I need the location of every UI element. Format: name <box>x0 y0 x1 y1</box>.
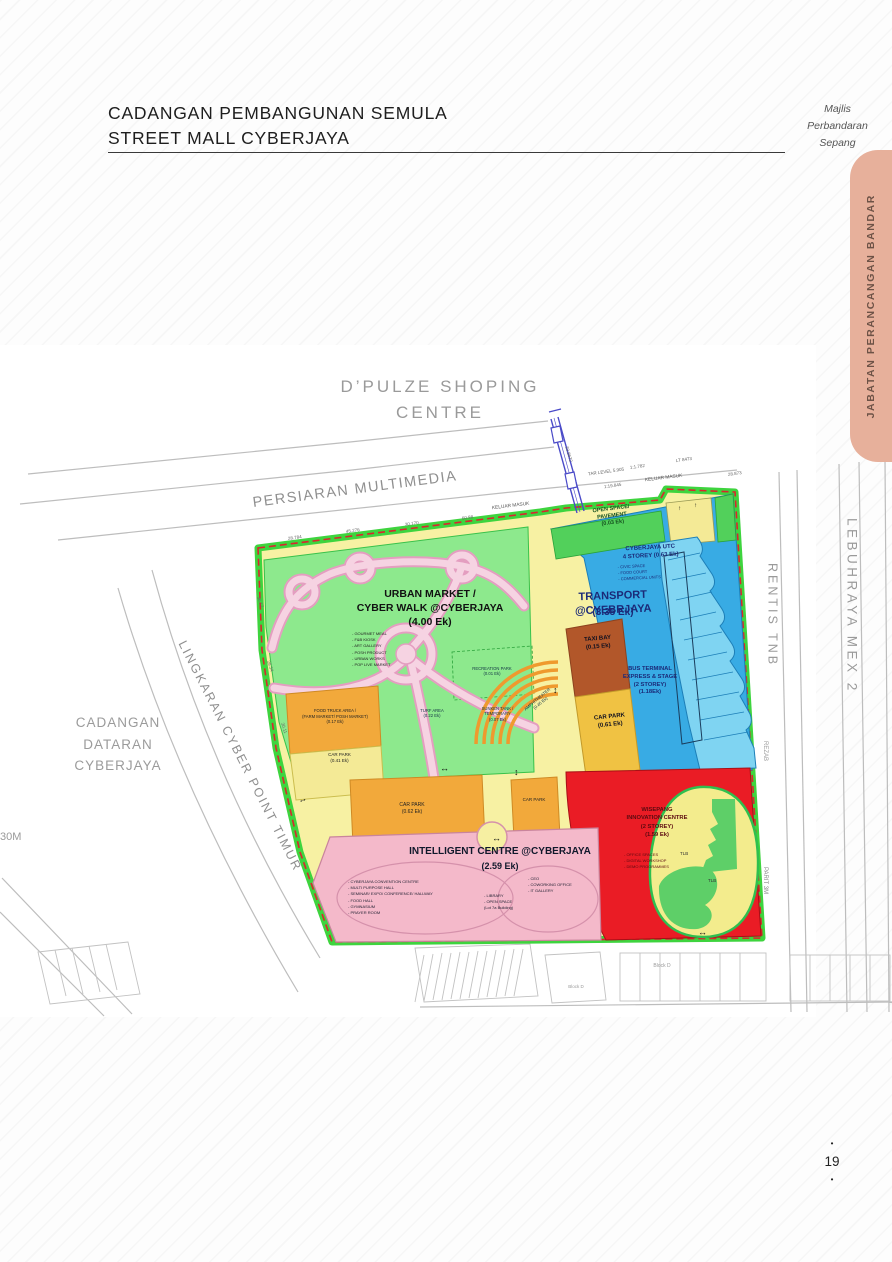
road-arrow-icon: ↑ <box>694 503 697 509</box>
organisation-name: Majlis Perbandaran Sepang <box>790 101 885 151</box>
label-urban-market: URBAN MARKET / CYBER WALK @CYBERJAYA (4.… <box>340 587 520 630</box>
decorative-dot: • <box>810 1176 854 1184</box>
label-dpulze: D’PULZE SHOPING CENTRE <box>300 374 580 425</box>
road-arrow-icon: ↑ <box>678 506 681 512</box>
label-block-d-2: Block D <box>556 984 596 990</box>
road-arrow-icon: ↔ <box>440 764 449 773</box>
label-tlb-1: TLB <box>680 851 688 857</box>
department-tab: JABATAN PERANCANGAN BANDAR <box>850 150 892 462</box>
label-intelligent-centre: INTELLIGENT CENTRE @CYBERJAYA <box>400 845 600 858</box>
label-food-truck: FOOD TRUCK AREA / (FARM MARKET/ POSH MAR… <box>294 708 376 725</box>
page-number-block: • 19 • <box>810 1140 854 1184</box>
page-title-line1: CADANGAN PEMBANGUNAN SEMULA <box>108 101 448 126</box>
road-arrow-icon: ↔ <box>492 834 501 843</box>
label-tlb-2: TLB <box>708 878 716 884</box>
label-cadangan-dataran: CADANGAN DATARAN CYBERJAYA <box>48 712 188 777</box>
label-parit-3m: PARIT 3M <box>760 836 768 926</box>
label-car-park-left: CAR PARK (0.41 Ek) <box>312 752 367 764</box>
list-intelligent-mid: - LIBRARY - OPEN SPACE (Lot 7a Building) <box>484 893 554 912</box>
label-rezab: REZAB <box>760 716 768 786</box>
decorative-dot: • <box>810 1140 854 1148</box>
page-title-line2: STREET MALL CYBERJAYA <box>108 126 448 151</box>
label-30m: 30M <box>0 830 21 844</box>
open-space-corner <box>715 494 736 542</box>
label-innovation-centre: WISEPANG INNOVATION CENTRE (2 STOREY) (1… <box>612 806 702 840</box>
list-intelligent-right: - CEO - COWORKING OFFICE - IT GALLERY <box>528 876 598 895</box>
list-innovation-items: - OFFICE SPACES - DIGITAL WORKSHOP - DEM… <box>624 852 704 871</box>
label-lebuhraya-mex2: LEBUHRAYA MEX 2 <box>843 498 861 713</box>
label-car-park-small: CAR PARK <box>512 797 556 803</box>
list-urban-items: - GOURMET MEAL - F&B KIOSK - ART GALLERY… <box>352 631 462 668</box>
label-bus-terminal: BUS TERMINAL EXPRESS & STAGE (2 STOREY) … <box>612 666 688 697</box>
page-number: 19 <box>810 1155 854 1169</box>
label-recreation-park: RECREATION PARK (0.01 Ek) <box>462 666 522 677</box>
label-turf-area: TURF AREA (0.22 Ek) <box>408 708 456 719</box>
page-title: CADANGAN PEMBANGUNAN SEMULA STREET MALL … <box>108 101 448 151</box>
road-arrow-icon: ↕ <box>553 686 558 695</box>
department-tab-label: JABATAN PERANCANGAN BANDAR <box>865 194 877 418</box>
label-block-d-1: Block D <box>640 963 684 970</box>
label-transport-area: (3.35 Ek) <box>548 606 678 619</box>
label-rentis-tnb: RENTIS TNB <box>764 540 780 690</box>
label-intelligent-area: (2.59 Ek) <box>400 861 600 873</box>
document-page: CADANGAN PEMBANGUNAN SEMULA STREET MALL … <box>0 0 892 1262</box>
title-underline <box>108 152 785 153</box>
list-intelligent-left: - CYBERJAYA CONVENTION CENTRE - MULTI PU… <box>348 879 483 916</box>
road-arrow-icon: ↕ <box>514 768 519 777</box>
zone-car-park-strip <box>575 689 640 776</box>
label-car-park-mid: CAR PARK (0.62 Ek) <box>380 802 444 815</box>
road-arrow-icon: ↔ <box>698 928 707 937</box>
